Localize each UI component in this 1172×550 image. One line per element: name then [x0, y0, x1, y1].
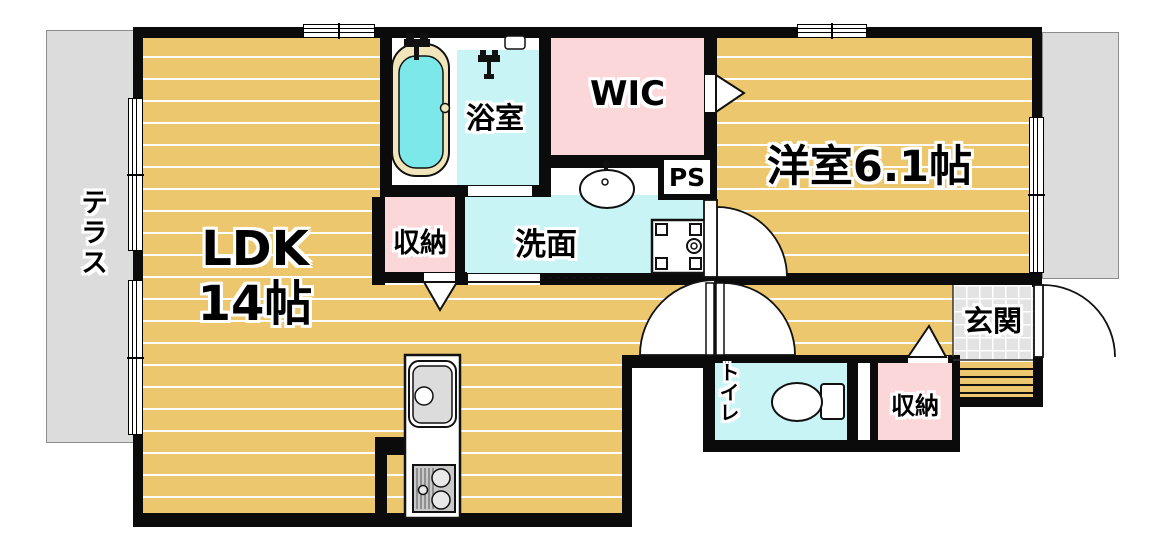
bath-label: 浴室 [450, 95, 540, 137]
toilet-icon [772, 383, 844, 421]
ldk-name: LDK [160, 222, 350, 277]
storage-lower-label: 収納 [876, 386, 954, 421]
hall-entrance-door [716, 283, 795, 355]
terrace-label: テラス [72, 188, 111, 278]
entrance-door [1034, 285, 1115, 357]
ldk-label: LDK 14帖 [160, 222, 350, 332]
washing-machine-pan-icon [652, 220, 705, 273]
floor-plan: テラス LDK 14帖 浴室 WIC 洋室6.1帖 収納 洗面 PS トイレ 収… [0, 0, 1172, 550]
washroom-label: 洗面 [480, 219, 612, 264]
wic-door-marker [716, 75, 744, 112]
western-room-door [704, 200, 787, 277]
entrance-label: 玄関 [953, 298, 1033, 340]
washstand-icon [580, 160, 634, 208]
storage-lower-door-marker [908, 326, 946, 357]
toilet-label: トイレ [714, 362, 743, 422]
hall-ldk-door [640, 280, 715, 355]
shower-icon [478, 50, 500, 79]
bathtub-icon [392, 33, 450, 176]
ldk-size: 14帖 [160, 277, 350, 332]
kitchen-unit-icon [405, 355, 460, 518]
western-room-label: 洋室6.1帖 [717, 132, 1022, 194]
bath-counter-icon [505, 36, 525, 49]
storage-upper-door-marker [424, 282, 457, 310]
wic-label: WIC [551, 74, 704, 114]
storage-upper-label: 収納 [383, 221, 457, 260]
ps-label: PS [664, 163, 710, 192]
